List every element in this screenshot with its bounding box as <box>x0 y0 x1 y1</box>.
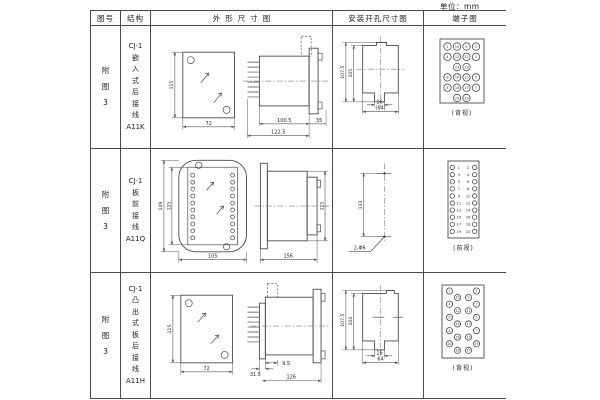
dim-side-height: 115 <box>320 202 326 211</box>
svg-text:17: 17 <box>464 86 468 90</box>
relay-front-view: 149 125 105 <box>158 160 246 262</box>
dim-pin-depth: 31.5 <box>250 372 261 378</box>
svg-text:3: 3 <box>475 55 477 59</box>
dim-inner-height: 104 <box>348 317 354 326</box>
fig-no-row3: 附图3 <box>91 273 121 398</box>
outline-drawing-row3: 115 72 9 <box>151 273 332 398</box>
outline-cell-row2: 149 125 105 <box>151 149 333 273</box>
terminal-grid: 2109141211314136161558181772019 <box>444 43 480 102</box>
svg-text:14: 14 <box>455 322 459 326</box>
svg-text:16: 16 <box>455 335 459 339</box>
svg-text:11: 11 <box>464 55 468 59</box>
dim-body-depth: 156 <box>283 254 292 260</box>
svg-text:19: 19 <box>456 229 461 234</box>
terminal-caption: (前视) <box>453 244 474 252</box>
terminal-cell-row1: 2109141211314136161558181772019 (背视) <box>424 26 506 149</box>
svg-text:10: 10 <box>455 296 459 300</box>
cutout-profile: 107.5 105 16 (64) <box>340 37 404 114</box>
svg-text:2: 2 <box>448 289 450 293</box>
dim-body-depth: 100.5 <box>277 118 291 124</box>
structure-row3: CJ-1凸出式板后接线A11H <box>121 273 151 398</box>
dim-outer-height: 107.5 <box>340 314 346 327</box>
svg-text:14: 14 <box>466 208 471 213</box>
dim-notch-width: 16 <box>376 350 382 356</box>
svg-text:5: 5 <box>475 76 477 80</box>
terminal-cell-row3: 2468201012141618911131517135719 (背视) <box>424 273 506 398</box>
header-structure: 结构 <box>121 11 151 26</box>
dim-front-height: 115 <box>169 81 175 90</box>
dim-front-height: 115 <box>167 325 173 334</box>
svg-text:7: 7 <box>475 329 477 333</box>
structure-row2: CJ-1板前接线A11Q <box>121 149 151 273</box>
relay-side-view: 156 115 <box>254 163 330 262</box>
dim-inner-height: 105 <box>348 69 354 78</box>
panel-front-view: 115 72 <box>167 295 233 375</box>
terminal-drawing-row2: 1234567891011121314151617181920 (前视) <box>424 149 506 272</box>
svg-text:15: 15 <box>456 215 461 220</box>
outline-cell-row3: 115 72 9 <box>151 273 333 398</box>
fig-no-row1: 附图3 <box>91 26 121 149</box>
drill-holes: 133 2-Φ6 <box>349 164 392 252</box>
svg-text:9: 9 <box>458 193 461 198</box>
svg-text:2: 2 <box>467 165 470 170</box>
svg-text:18: 18 <box>466 222 471 227</box>
svg-text:7: 7 <box>475 86 477 90</box>
dim-gap-depth: 9.5 <box>282 361 290 367</box>
dim-hole-pitch: 133 <box>358 201 364 210</box>
svg-text:5: 5 <box>475 316 477 320</box>
terminal-caption: (背视) <box>452 109 473 117</box>
outline-drawing-row2: 149 125 105 <box>151 149 332 272</box>
mounting-drawing-row3: 107.5 104 16 64 <box>333 273 423 398</box>
manual-page: 单位：mm 图号 结构 外形尺寸图 安装开孔尺寸图 端子图 附图3 CJ-1嵌入… <box>0 0 600 400</box>
svg-text:4: 4 <box>467 172 470 177</box>
panel-front-view: 115 72 <box>169 52 235 130</box>
svg-text:18: 18 <box>455 349 459 353</box>
svg-text:12: 12 <box>455 309 459 313</box>
fig-no-row2: 附图3 <box>91 149 121 273</box>
svg-text:3: 3 <box>458 172 461 177</box>
terminal-grid: 1234567891011121314151617181920 <box>450 165 477 234</box>
svg-text:15: 15 <box>466 335 470 339</box>
svg-text:8: 8 <box>448 329 450 333</box>
svg-text:20: 20 <box>466 229 471 234</box>
dim-opening-width: 64 <box>377 357 383 363</box>
spec-table: 图号 结构 外形尺寸图 安装开孔尺寸图 端子图 附图3 CJ-1嵌入式后接线A1… <box>90 10 506 399</box>
terminal-drawing-row1: 2109141211314136161558181772019 (背视) <box>424 26 506 148</box>
structure-row1: CJ-1嵌入式后接线A11K <box>121 26 151 149</box>
side-view: 9.5 31.5 126 <box>247 283 330 382</box>
terminal-drawing-row3: 2468201012141618911131517135719 (背视) <box>424 273 506 398</box>
dim-inner-height: 125 <box>167 202 173 211</box>
svg-text:13: 13 <box>456 208 461 213</box>
svg-text:11: 11 <box>456 200 461 205</box>
svg-text:8: 8 <box>467 186 470 191</box>
svg-text:13: 13 <box>464 65 468 69</box>
svg-text:8: 8 <box>446 86 448 90</box>
dim-notch-width: 16 <box>376 99 382 105</box>
svg-text:18: 18 <box>455 86 459 90</box>
svg-text:14: 14 <box>455 65 459 69</box>
svg-text:3: 3 <box>475 302 477 306</box>
svg-text:6: 6 <box>448 316 450 320</box>
svg-text:16: 16 <box>466 215 471 220</box>
terminal-cell-row2: 1234567891011121314151617181920 (前视) <box>424 149 506 273</box>
dim-front-width: 72 <box>204 366 210 372</box>
svg-text:11: 11 <box>466 309 470 313</box>
dim-front-width: 72 <box>206 121 212 127</box>
svg-text:19: 19 <box>474 342 478 346</box>
cutout-profile: 107.5 104 16 64 <box>340 286 403 365</box>
svg-text:1: 1 <box>458 165 461 170</box>
svg-text:4: 4 <box>446 55 448 59</box>
svg-text:10: 10 <box>466 193 471 198</box>
dim-hole-spec: 2-Φ6 <box>354 246 366 252</box>
header-outline: 外形尺寸图 <box>151 11 333 26</box>
dim-flange-depth: 35 <box>316 118 322 124</box>
svg-text:20: 20 <box>447 342 451 346</box>
header-fig-no: 图号 <box>91 11 121 26</box>
svg-text:12: 12 <box>455 55 459 59</box>
dim-total-depth: 122.5 <box>271 130 285 136</box>
mounting-cell-row2: 133 2-Φ6 <box>333 149 424 273</box>
svg-text:20: 20 <box>455 96 459 100</box>
svg-text:17: 17 <box>456 222 461 227</box>
mounting-cell-row3: 107.5 104 16 64 <box>333 273 424 398</box>
svg-text:9: 9 <box>467 296 469 300</box>
mounting-cell-row1: 107.5 105 16 (64) <box>333 26 424 149</box>
dim-outer-height: 107.5 <box>340 66 346 79</box>
dim-front-width: 105 <box>208 254 217 260</box>
svg-text:6: 6 <box>467 179 470 184</box>
svg-text:17: 17 <box>466 349 470 353</box>
svg-text:9: 9 <box>465 45 467 49</box>
svg-text:16: 16 <box>455 76 459 80</box>
dim-opening-width: (64) <box>375 106 385 112</box>
svg-text:4: 4 <box>448 302 450 306</box>
header-terminal: 端子图 <box>424 11 506 26</box>
outline-cell-row1: 115 72 <box>151 26 333 149</box>
svg-text:10: 10 <box>455 45 459 49</box>
mounting-drawing-row1: 107.5 105 16 (64) <box>333 26 423 148</box>
svg-text:1: 1 <box>475 289 477 293</box>
svg-text:15: 15 <box>464 76 468 80</box>
mounting-drawing-row2: 133 2-Φ6 <box>333 149 423 272</box>
svg-text:12: 12 <box>466 200 471 205</box>
svg-text:6: 6 <box>446 76 448 80</box>
svg-text:7: 7 <box>458 186 461 191</box>
svg-text:5: 5 <box>458 179 461 184</box>
svg-text:13: 13 <box>466 322 470 326</box>
terminal-grid: 2468201012141618911131517135719 <box>446 288 479 354</box>
dim-front-height: 149 <box>158 202 164 211</box>
svg-text:19: 19 <box>464 96 468 100</box>
header-mounting: 安装开孔尺寸图 <box>333 11 424 26</box>
svg-text:1: 1 <box>475 45 477 49</box>
dim-body-depth: 126 <box>286 375 295 381</box>
side-view: 100.5 35 122.5 <box>242 36 328 137</box>
outline-drawing-row1: 115 72 <box>151 26 332 148</box>
svg-text:2: 2 <box>446 45 448 49</box>
terminal-caption: (背视) <box>453 364 474 372</box>
